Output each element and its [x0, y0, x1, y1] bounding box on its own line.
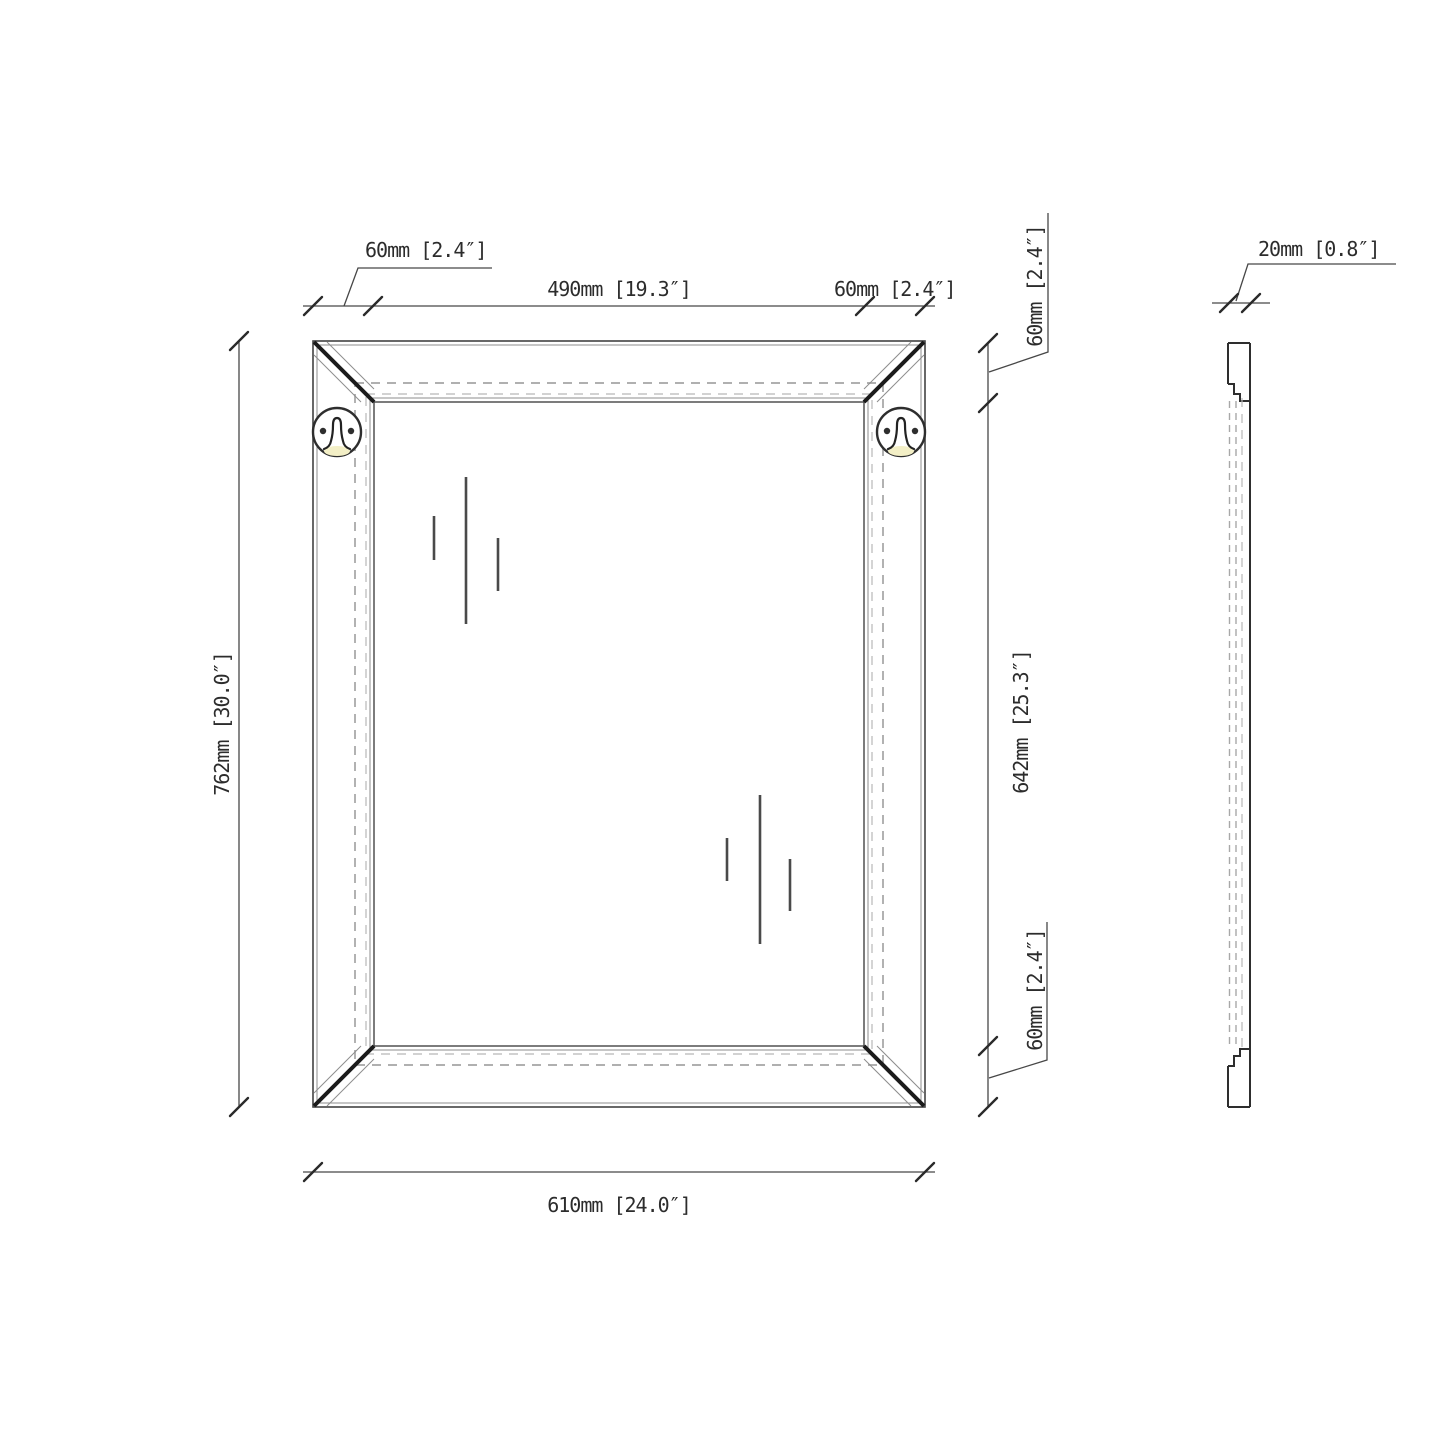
dimension-top: 490mm [19.3″] 60mm [2.4″] 60mm [2.4″] [303, 238, 955, 315]
mirror-technical-drawing: 490mm [19.3″] 60mm [2.4″] 60mm [2.4″] 76… [0, 0, 1445, 1445]
side-view [1228, 343, 1250, 1107]
frame-outer-bevel-line [317, 345, 921, 1103]
frame-inner-bevel-line [370, 398, 868, 1050]
mitre-top-left [314, 342, 374, 402]
dim-label-thickness: 20mm [0.8″] [1258, 237, 1379, 261]
dim-label-opening-height: 642mm [25.3″] [1009, 650, 1033, 794]
hanger-screw-left [320, 428, 326, 434]
dim-label-overall-height: 762mm [30.0″] [210, 652, 234, 796]
dimension-bottom: 610mm [24.0″] [303, 1163, 935, 1217]
mitre-joints [314, 342, 924, 1106]
mitre-top-right [864, 342, 924, 402]
side-rebate-step-top [1228, 384, 1250, 401]
dimension-thickness: 20mm [0.8″] [1212, 237, 1396, 312]
drawing-svg: 490mm [19.3″] 60mm [2.4″] 60mm [2.4″] 76… [0, 0, 1445, 1445]
front-view [313, 341, 925, 1107]
dim-label-overall-width: 610mm [24.0″] [547, 1193, 691, 1217]
dimension-right: 60mm [2.4″] 642mm [25.3″] 60mm [2.4″] [979, 213, 1048, 1116]
frame-hidden-line-outer [355, 383, 883, 1065]
dim-label-frame-height-bottom: 60mm [2.4″] [1023, 929, 1047, 1050]
hanger-screw-right [912, 428, 918, 434]
dim-label-opening-width: 490mm [19.3″] [547, 277, 691, 301]
frame-outer-edge [313, 341, 925, 1107]
dimension-left: 762mm [30.0″] [210, 332, 248, 1116]
frame-hidden-line-inner [366, 394, 872, 1054]
mitre-bottom-left [314, 1046, 374, 1106]
hanger-screw-right [348, 428, 354, 434]
leader-frame-width-left [344, 268, 492, 306]
dim-label-frame-width-left: 60mm [2.4″] [365, 238, 486, 262]
keyhole-hanger-icon [313, 408, 361, 456]
dim-label-frame-height-top: 60mm [2.4″] [1023, 225, 1047, 346]
dim-label-frame-width-right: 60mm [2.4″] [834, 277, 955, 301]
keyhole-hanger-icon [877, 408, 925, 456]
mitre-bottom-right [864, 1046, 924, 1106]
frame-inner-edge [374, 402, 864, 1046]
glass-reflection-marks [434, 477, 790, 944]
side-rebate-step-bottom [1228, 1049, 1250, 1066]
hanger-screw-left [884, 428, 890, 434]
